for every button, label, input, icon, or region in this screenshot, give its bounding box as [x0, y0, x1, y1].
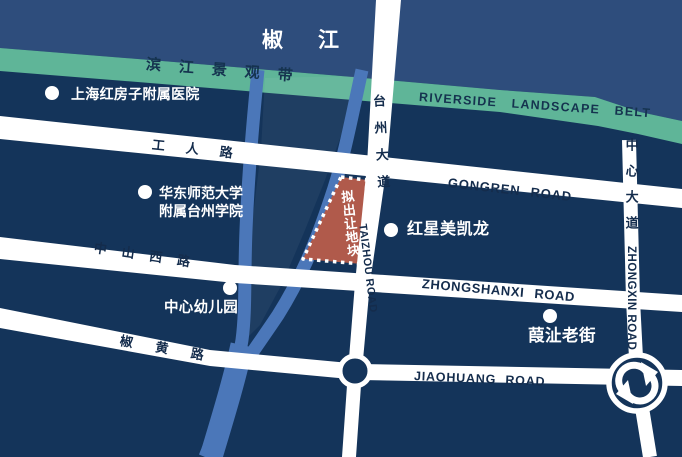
poi-dot-kindergarten [223, 281, 237, 295]
location-map: 椒江 滨江景观带 RIVERSIDE LANDSCAPE BELT 上海红房子附… [0, 0, 682, 457]
map-shapes [0, 0, 682, 457]
poi-dot-jiazhi [543, 309, 557, 323]
interchange-icon [609, 355, 665, 411]
poi-dot-hospital [45, 86, 59, 100]
poi-dot-university [138, 185, 152, 199]
poi-dot-redstar [384, 223, 398, 237]
roundabout-small [340, 356, 370, 386]
